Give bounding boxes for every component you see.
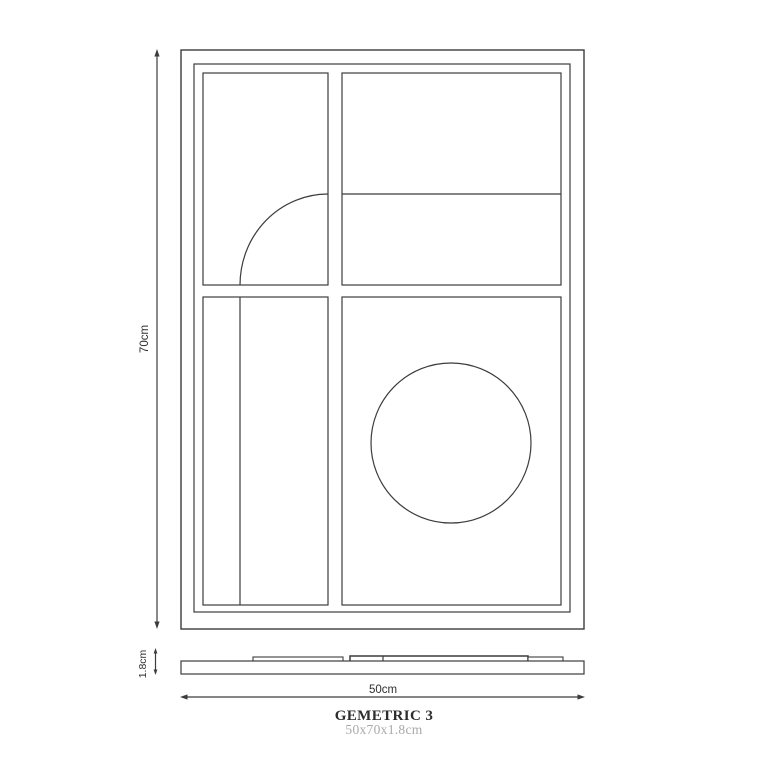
width-dimension-arrow-left xyxy=(180,694,188,699)
side-view-slab xyxy=(181,661,584,674)
panel-bottom-right xyxy=(342,297,561,605)
product-size: 50x70x1.8cm xyxy=(345,722,422,737)
thickness-dimension-arrow-top xyxy=(154,648,158,654)
height-dimension-arrow-top xyxy=(154,49,159,57)
panel-top-left xyxy=(203,73,328,285)
width-dimension-arrow-right xyxy=(578,694,586,699)
height-dimension-label: 70cm xyxy=(139,325,151,353)
panel-bottom-left xyxy=(203,297,328,605)
panel-top-right xyxy=(342,73,561,285)
technical-drawing: 70cm 1.8cm 50cm GEMETRIC 3 50x70x1.8cm xyxy=(0,0,768,768)
thickness-dimension-arrow-bottom xyxy=(154,670,158,676)
width-dimension-label: 50cm xyxy=(369,684,397,696)
drawing-canvas: 70cm 1.8cm 50cm GEMETRIC 3 50x70x1.8cm xyxy=(0,0,768,768)
thickness-dimension-label: 1.8cm xyxy=(137,649,149,678)
height-dimension-arrow-bottom xyxy=(154,622,159,630)
